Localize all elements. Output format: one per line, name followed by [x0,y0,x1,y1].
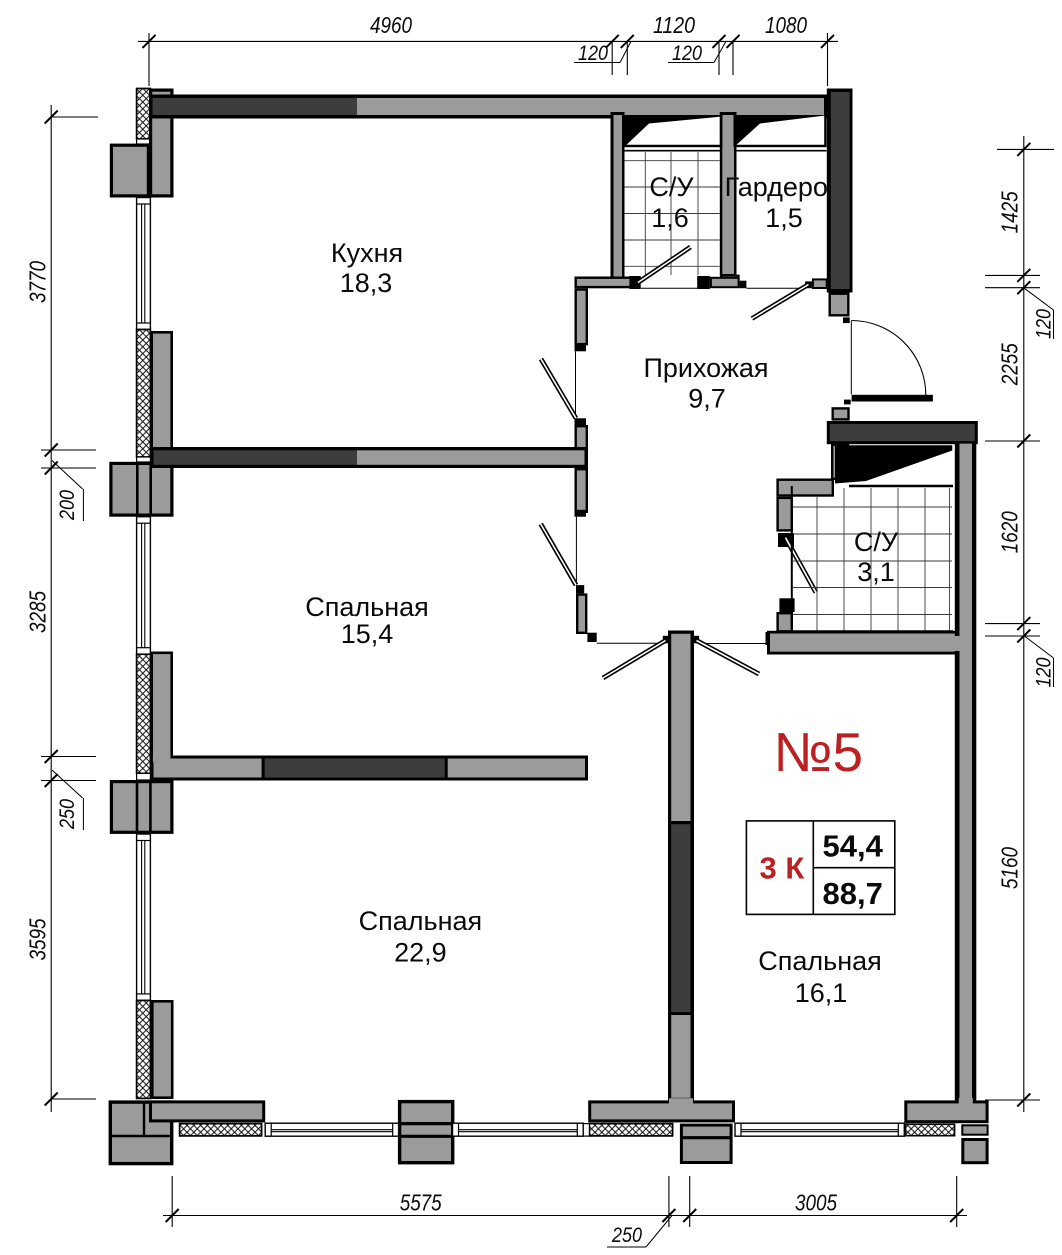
svg-text:120: 120 [1033,657,1056,687]
svg-text:250: 250 [56,799,79,830]
svg-text:5160: 5160 [997,847,1023,889]
svg-text:120: 120 [578,42,608,65]
svg-text:5575: 5575 [400,1190,442,1216]
svg-text:9,7: 9,7 [688,384,726,414]
svg-text:120: 120 [672,42,702,65]
svg-text:250: 250 [611,1224,642,1247]
svg-text:1,5: 1,5 [765,203,803,233]
svg-text:22,9: 22,9 [394,938,447,968]
svg-text:3,1: 3,1 [857,557,895,587]
svg-text:200: 200 [56,490,79,521]
svg-text:16,1: 16,1 [795,978,848,1008]
svg-text:Прихожая: Прихожая [643,353,768,383]
svg-text:Кухня: Кухня [331,238,403,268]
svg-text:1,6: 1,6 [651,203,689,233]
svg-text:4960: 4960 [370,12,412,38]
svg-text:С/У: С/У [649,172,694,202]
svg-text:3 К: 3 К [760,851,805,886]
svg-text:С/У: С/У [854,527,899,557]
svg-text:3285: 3285 [25,591,51,633]
svg-text:18,3: 18,3 [340,268,393,298]
svg-text:3005: 3005 [795,1190,837,1216]
svg-text:Спальная: Спальная [359,906,483,936]
svg-text:1620: 1620 [997,511,1023,553]
svg-text:Гардероб: Гардероб [725,172,844,202]
svg-text:№5: №5 [774,721,864,783]
svg-text:3595: 3595 [25,918,51,960]
svg-text:Спальная: Спальная [758,946,882,976]
svg-text:3770: 3770 [25,261,51,303]
svg-text:2255: 2255 [997,343,1023,386]
svg-text:1425: 1425 [997,191,1023,233]
svg-text:54,4: 54,4 [823,829,884,864]
svg-text:15,4: 15,4 [341,619,394,649]
svg-text:120: 120 [1033,309,1056,339]
svg-text:1080: 1080 [765,12,807,38]
svg-text:Спальная: Спальная [305,592,429,622]
svg-text:88,7: 88,7 [823,876,883,911]
svg-text:1120: 1120 [653,12,695,38]
